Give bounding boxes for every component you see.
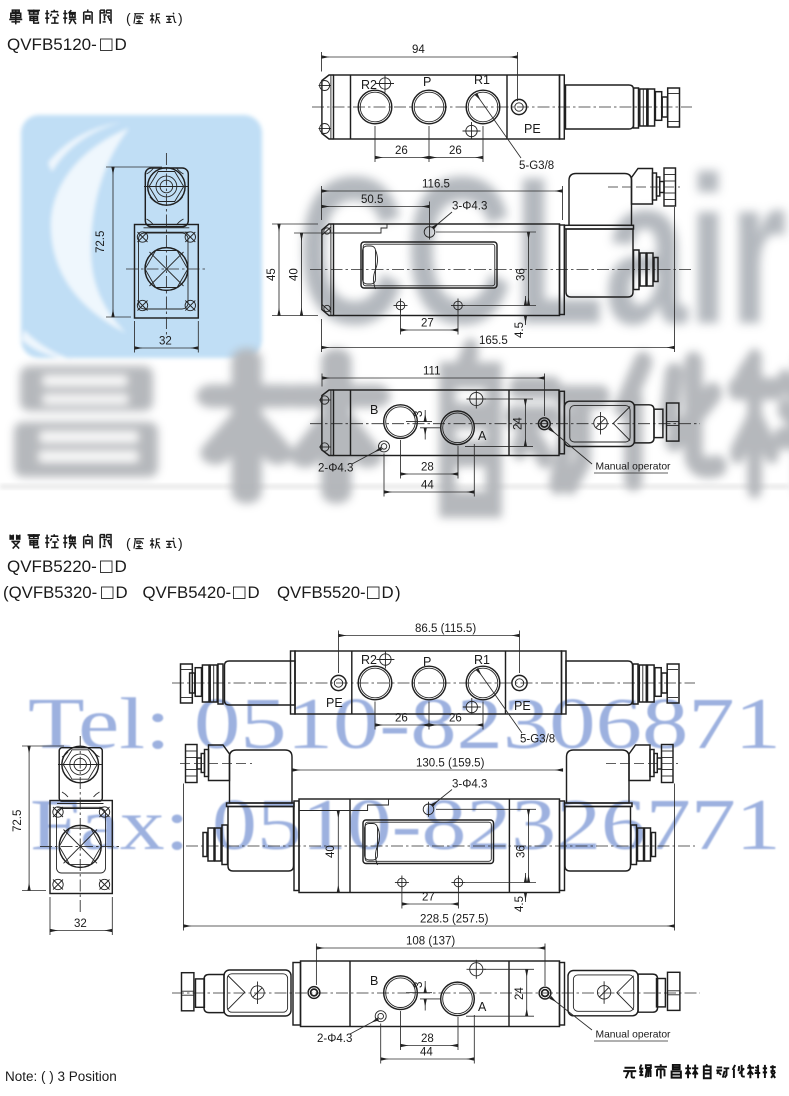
svg-text:130.5 (159.5): 130.5 (159.5) bbox=[416, 758, 485, 770]
svg-text:R2: R2 bbox=[361, 78, 377, 92]
svg-text:D: D bbox=[382, 583, 394, 602]
svg-text:40: 40 bbox=[289, 268, 301, 281]
svg-text:QVFB5220-: QVFB5220- bbox=[7, 557, 97, 576]
svg-text:QVFB5120-: QVFB5120- bbox=[7, 35, 97, 54]
svg-text:D: D bbox=[115, 35, 127, 54]
svg-text:24: 24 bbox=[514, 987, 526, 1000]
svg-text:36: 36 bbox=[516, 268, 528, 281]
svg-text:2-Φ4.3: 2-Φ4.3 bbox=[318, 463, 353, 475]
svg-text:26: 26 bbox=[449, 145, 462, 157]
svg-text:50.5: 50.5 bbox=[361, 194, 383, 206]
svg-text:3: 3 bbox=[413, 411, 425, 417]
svg-text:R1: R1 bbox=[474, 73, 490, 87]
svg-text:94: 94 bbox=[412, 44, 425, 56]
svg-text:A: A bbox=[478, 429, 487, 443]
svg-text:36: 36 bbox=[516, 845, 528, 858]
svg-text:2-Φ4.3: 2-Φ4.3 bbox=[317, 1033, 352, 1045]
svg-text:26: 26 bbox=[395, 145, 408, 157]
svg-text:Fax: 0510-82326771: Fax: 0510-82326771 bbox=[30, 784, 781, 865]
svg-text:QVFB5520-: QVFB5520- bbox=[277, 583, 366, 602]
svg-text:28: 28 bbox=[421, 462, 434, 474]
svg-text:4.5: 4.5 bbox=[514, 322, 526, 338]
svg-text:3: 3 bbox=[413, 982, 425, 988]
svg-text:28: 28 bbox=[421, 1033, 434, 1045]
svg-text:(QVFB5320-: (QVFB5320- bbox=[3, 583, 97, 602]
svg-text:32: 32 bbox=[159, 336, 172, 348]
svg-text:A: A bbox=[478, 1000, 487, 1014]
svg-text:32: 32 bbox=[74, 918, 87, 930]
svg-text:111: 111 bbox=[423, 366, 440, 378]
svg-text:Manual operator: Manual operator bbox=[596, 462, 672, 473]
svg-text:D: D bbox=[248, 583, 260, 602]
svg-text:(: ( bbox=[126, 535, 131, 551]
svg-text:86.5 (115.5): 86.5 (115.5) bbox=[415, 623, 476, 635]
svg-text:4.5: 4.5 bbox=[514, 896, 526, 912]
svg-text:): ) bbox=[178, 535, 183, 551]
svg-text:3-Φ4.3: 3-Φ4.3 bbox=[452, 201, 487, 213]
svg-text:72.5: 72.5 bbox=[12, 810, 24, 832]
svg-text:5-G3/8: 5-G3/8 bbox=[519, 160, 554, 172]
svg-text:Manual operator: Manual operator bbox=[596, 1030, 672, 1041]
svg-text:5-G3/8: 5-G3/8 bbox=[520, 734, 555, 746]
svg-text:PE: PE bbox=[524, 122, 541, 136]
svg-text:108 (137): 108 (137) bbox=[406, 936, 455, 948]
svg-text:24: 24 bbox=[513, 417, 525, 430]
svg-text:R1: R1 bbox=[474, 653, 490, 667]
svg-text:): ) bbox=[395, 583, 401, 602]
svg-text:228.5 (257.5): 228.5 (257.5) bbox=[420, 914, 489, 926]
svg-text:PE: PE bbox=[514, 699, 531, 713]
svg-text:40: 40 bbox=[325, 845, 337, 858]
svg-text:PE: PE bbox=[326, 696, 343, 710]
svg-text:26: 26 bbox=[449, 713, 462, 725]
svg-text:D: D bbox=[116, 583, 128, 602]
svg-text:(: ( bbox=[126, 10, 131, 26]
svg-text:R2: R2 bbox=[361, 653, 377, 667]
svg-text:45: 45 bbox=[266, 268, 278, 281]
svg-text:44: 44 bbox=[421, 480, 434, 492]
svg-text:116.5: 116.5 bbox=[422, 179, 450, 191]
svg-text:P: P bbox=[423, 655, 431, 669]
svg-text:Note: ( ) 3 Position: Note: ( ) 3 Position bbox=[5, 1069, 117, 1084]
svg-text:44: 44 bbox=[420, 1047, 433, 1059]
svg-text:26: 26 bbox=[395, 713, 408, 725]
svg-text:B: B bbox=[370, 403, 378, 417]
svg-text:QVFB5420-: QVFB5420- bbox=[143, 583, 232, 602]
svg-text:165.5: 165.5 bbox=[479, 335, 508, 347]
svg-text:): ) bbox=[178, 10, 183, 26]
svg-text:P: P bbox=[423, 75, 431, 89]
svg-text:27: 27 bbox=[422, 892, 435, 904]
svg-text:3-Φ4.3: 3-Φ4.3 bbox=[452, 779, 487, 791]
svg-text:B: B bbox=[370, 974, 378, 988]
svg-text:27: 27 bbox=[421, 318, 434, 330]
svg-text:D: D bbox=[115, 557, 127, 576]
svg-text:72.5: 72.5 bbox=[95, 231, 107, 253]
